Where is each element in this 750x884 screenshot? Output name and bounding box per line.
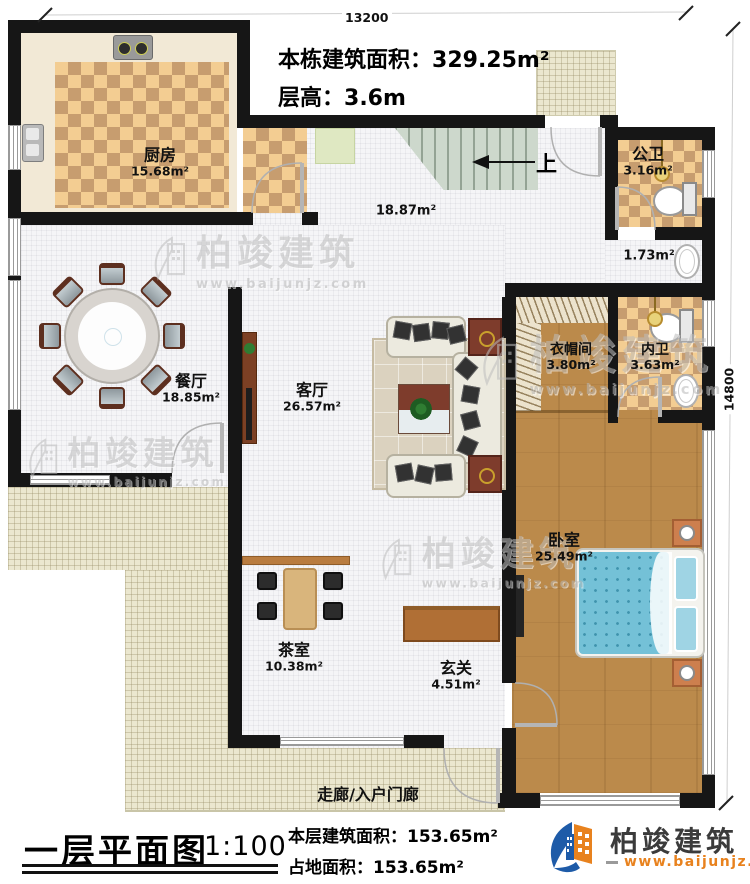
tea-room-label: 茶室10.38m² (265, 642, 323, 675)
wash-corridor-area-label: 1.73m² (623, 249, 674, 264)
floor-plan-canvas: 柏竣建筑 www.baijunjz.com 柏竣建筑 www.baijunjz.… (0, 0, 750, 884)
public-bath-label: 公卫3.16m² (623, 146, 672, 179)
door-arc-bedroom (515, 683, 557, 725)
door-arc-public-bath (617, 187, 655, 230)
living-label: 客厅26.57m² (283, 382, 341, 415)
floor-area-text: 本层建筑面积：153.65m² (288, 822, 498, 847)
title-underline (22, 864, 278, 874)
dim-tick (679, 6, 693, 20)
brand-logo-icon (544, 818, 604, 876)
kitchen-label: 厨房15.68m² (131, 147, 189, 180)
plan-overlay (0, 0, 750, 884)
ensuite-label: 内卫3.63m² (630, 342, 679, 372)
land-area-text: 占地面积：153.65m² (288, 853, 464, 878)
cloakroom-label: 衣帽间3.80m² (546, 342, 595, 372)
dash-icon (606, 861, 618, 864)
dim-line-right (727, 29, 733, 802)
dining-label: 餐厅18.85m² (162, 373, 220, 406)
door-arc-back (551, 127, 600, 176)
plan-scale: 1:100 (204, 831, 287, 862)
bedroom-label: 卧室25.49m² (535, 532, 593, 565)
floor-height-text: 层高：3.6m (278, 80, 406, 112)
building-area-text: 本栋建筑面积：329.25m² (278, 42, 549, 74)
dimension-top: 13200 (342, 10, 392, 25)
stairs-up-label: 上 (536, 148, 557, 178)
door-arc-dining (172, 423, 222, 473)
dimension-right: 14800 (721, 365, 736, 415)
dim-tick (719, 796, 733, 810)
foyer-label: 玄关4.51m² (431, 660, 480, 693)
door-arc-ensuite (618, 377, 660, 417)
porch-label: 走廊/入户门廊 (317, 781, 419, 805)
brand-website: www.baijunjz.com (606, 854, 750, 870)
door-arc-kitchen (252, 163, 302, 213)
hall-area-label: 18.87m² (376, 204, 436, 219)
door-arc-entrance (444, 748, 498, 803)
